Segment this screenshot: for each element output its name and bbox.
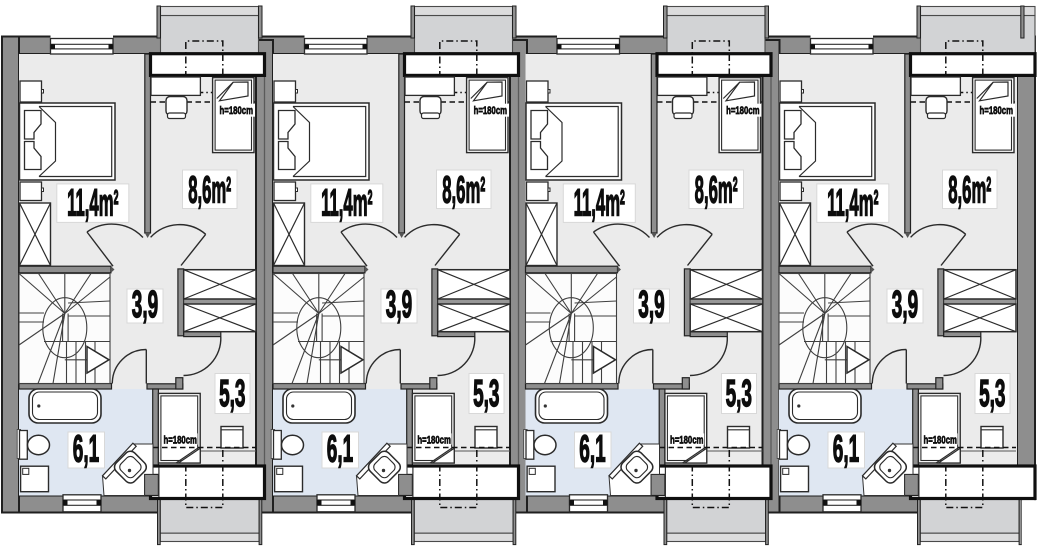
- svg-text:6,1: 6,1: [327, 429, 353, 471]
- svg-text:h=180cm: h=180cm: [417, 434, 450, 447]
- svg-text:h=180cm: h=180cm: [670, 434, 703, 447]
- svg-text:5,3: 5,3: [473, 373, 499, 415]
- svg-text:6,1: 6,1: [833, 429, 859, 471]
- svg-text:5,3: 5,3: [979, 373, 1005, 415]
- svg-text:11,4m2: 11,4m2: [574, 182, 625, 225]
- svg-text:5,3: 5,3: [726, 373, 752, 415]
- svg-text:5,3: 5,3: [219, 373, 245, 415]
- svg-text:h=180cm: h=180cm: [163, 434, 196, 447]
- svg-text:8,6m2: 8,6m2: [948, 169, 991, 212]
- svg-text:8,6m2: 8,6m2: [442, 169, 485, 212]
- svg-text:3,9: 3,9: [386, 284, 412, 326]
- svg-text:11,4m2: 11,4m2: [321, 182, 372, 225]
- svg-text:11,4m2: 11,4m2: [827, 182, 878, 225]
- svg-text:h=180cm: h=180cm: [474, 105, 507, 118]
- svg-text:6,1: 6,1: [579, 429, 605, 471]
- svg-text:3,9: 3,9: [132, 284, 158, 326]
- svg-text:h=180cm: h=180cm: [220, 105, 253, 118]
- svg-text:h=180cm: h=180cm: [726, 105, 759, 118]
- svg-text:6,1: 6,1: [73, 429, 99, 471]
- svg-text:11,4m2: 11,4m2: [67, 182, 118, 225]
- svg-text:h=180cm: h=180cm: [923, 434, 956, 447]
- svg-text:3,9: 3,9: [638, 284, 664, 326]
- svg-text:h=180cm: h=180cm: [980, 105, 1013, 118]
- svg-text:8,6m2: 8,6m2: [695, 169, 738, 212]
- svg-text:3,9: 3,9: [892, 284, 918, 326]
- svg-text:8,6m2: 8,6m2: [188, 169, 231, 212]
